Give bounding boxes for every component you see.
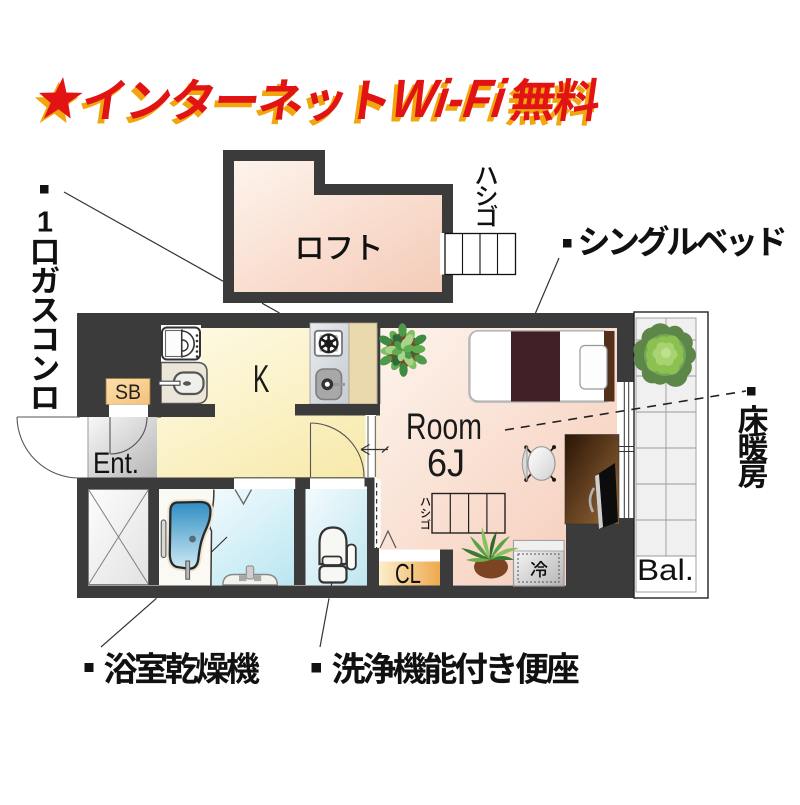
- svg-text:CL: CL: [395, 558, 421, 589]
- svg-text:Ent.: Ent.: [93, 447, 139, 480]
- svg-text:Bal.: Bal.: [637, 554, 694, 587]
- svg-text:SB: SB: [115, 381, 141, 404]
- svg-text:Wi-Fi: Wi-Fi: [388, 69, 510, 129]
- svg-text:K: K: [253, 356, 270, 400]
- svg-text:1: 1: [37, 207, 53, 239]
- svg-text:Room: Room: [406, 406, 482, 447]
- svg-text:6J: 6J: [427, 442, 465, 485]
